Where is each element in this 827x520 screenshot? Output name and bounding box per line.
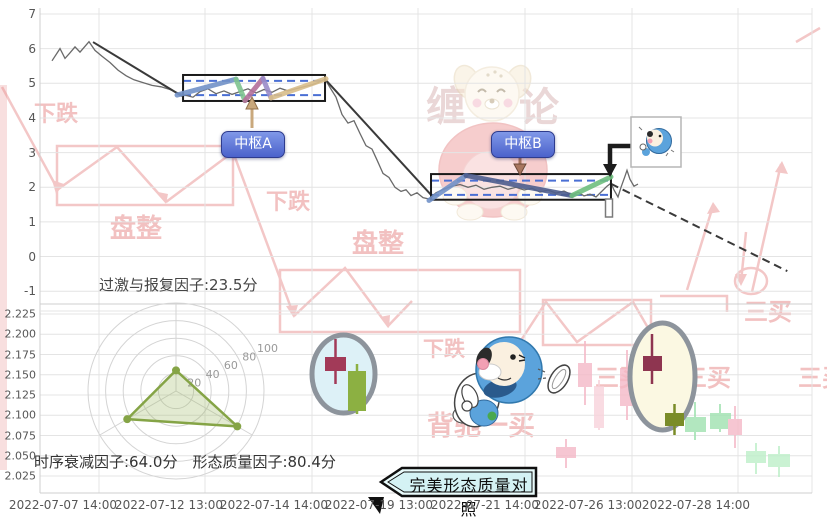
price-y-tick: -1 — [2, 284, 36, 298]
chan-analysis-chart[interactable]: 下跌下跌下跌盘整盘整三买三买三买三买背驰一买缠论20406080100 过激与报… — [0, 0, 827, 520]
radar-ring-label: 80 — [242, 351, 256, 364]
faint-candle — [594, 386, 604, 428]
pivot-a-label: 中枢A — [221, 131, 285, 158]
factor-decay-label: 时序衰减因子:64.0分 — [34, 453, 177, 471]
watermark-text: 下跌 — [266, 190, 311, 215]
medallion-candle — [665, 413, 684, 426]
price-y-tick: 0 — [2, 250, 36, 264]
watermark-text: 下跌 — [34, 102, 79, 127]
radar-ring-label: 100 — [257, 342, 278, 355]
radar-ring-label: 60 — [224, 359, 238, 372]
perfect-pattern-compare-label: 完美形态质量对照 — [403, 472, 535, 520]
x-axis-date-tick: 2022-07-12 13:00 — [115, 498, 223, 512]
price-y-tick: 5 — [2, 76, 36, 90]
radar-vertex — [172, 366, 180, 374]
watermark-arrowhead — [380, 315, 390, 328]
comparison-candle-medallion — [312, 335, 375, 414]
x-axis-date-tick: 2022-07-26 13:00 — [534, 498, 642, 512]
medallion-candle — [643, 356, 662, 371]
compare-y-tick: 2.050 — [2, 449, 36, 462]
faint-candle — [685, 417, 706, 432]
faint-candle — [710, 413, 731, 429]
factor-quality-label: 形态质量因子:80.4分 — [192, 453, 335, 471]
radar-vertex — [123, 415, 131, 423]
watermark-text: 三买 — [744, 298, 792, 326]
trend-line — [93, 42, 182, 96]
medallion-candle — [325, 357, 346, 371]
x-axis-date-tick: 2022-07-07 14:00 — [9, 498, 117, 512]
watermark-arrowhead — [775, 161, 788, 174]
trend-line — [325, 79, 433, 197]
x-axis-date-tick: 2022-07-21 14:00 — [431, 498, 539, 512]
compare-y-tick: 2.075 — [2, 429, 36, 442]
comparison-candle-medallion — [630, 323, 695, 435]
watermark-text: 盘整 — [110, 213, 162, 244]
watermark-text: 下跌 — [423, 337, 466, 361]
watermark-zigzag — [687, 206, 713, 290]
watermark-box — [57, 146, 233, 205]
radar-vertex — [233, 422, 241, 430]
price-y-tick: 6 — [2, 42, 36, 56]
pivot-b-label: 中枢B — [491, 131, 555, 158]
watermark-zigzag — [57, 147, 166, 202]
x-axis-date-tick: 2022-07-19 13:00 — [325, 498, 433, 512]
price-y-tick: 1 — [2, 215, 36, 229]
watermark-zigzag — [796, 28, 820, 42]
faint-candle — [768, 454, 790, 467]
watermark-zigzag — [752, 164, 781, 292]
watermark-text: 盘整 — [352, 228, 404, 259]
faint-candle — [556, 447, 576, 458]
factor-overreaction-label: 过激与报复因子:23.5分 — [99, 274, 257, 295]
chart-scene: 下跌下跌下跌盘整盘整三买三买三买三买背驰一买缠论20406080100 — [0, 0, 827, 520]
watermark-arrowhead — [707, 202, 720, 214]
compare-y-tick: 2.125 — [2, 389, 36, 402]
compare-y-tick: 2.225 — [2, 308, 36, 321]
watermark-box — [280, 270, 520, 332]
pivot-stroke-segment — [572, 177, 611, 196]
compare-y-tick: 2.175 — [2, 348, 36, 361]
faint-candle — [746, 451, 766, 463]
hollow-candle-marker — [606, 199, 613, 217]
faint-candle — [578, 363, 592, 387]
compare-y-tick: 2.150 — [2, 368, 36, 381]
price-y-tick: 3 — [2, 146, 36, 160]
medallion-candle — [348, 371, 366, 411]
x-axis-date-tick: 2022-07-14 14:00 — [220, 498, 328, 512]
price-y-tick: 7 — [2, 7, 36, 21]
factor-bottom-labels: 时序衰减因子:64.0分形态质量因子:80.4分 — [34, 451, 336, 472]
x-axis-date-tick: 2022-07-28 14:00 — [642, 498, 750, 512]
price-y-tick: 4 — [2, 111, 36, 125]
radar-polygon — [127, 370, 237, 426]
compare-y-tick: 2.025 — [2, 470, 36, 483]
watermark-arrowhead — [735, 274, 747, 286]
compare-y-tick: 2.200 — [2, 328, 36, 341]
watermark-texts: 下跌下跌下跌盘整盘整三买三买三买三买背驰一买缠论 — [34, 84, 827, 442]
price-y-tick: 2 — [2, 180, 36, 194]
compare-y-tick: 2.100 — [2, 409, 36, 422]
radar-ring-label: 40 — [206, 368, 220, 381]
faint-candle — [728, 419, 742, 435]
mini-sticker-frame — [631, 117, 681, 167]
